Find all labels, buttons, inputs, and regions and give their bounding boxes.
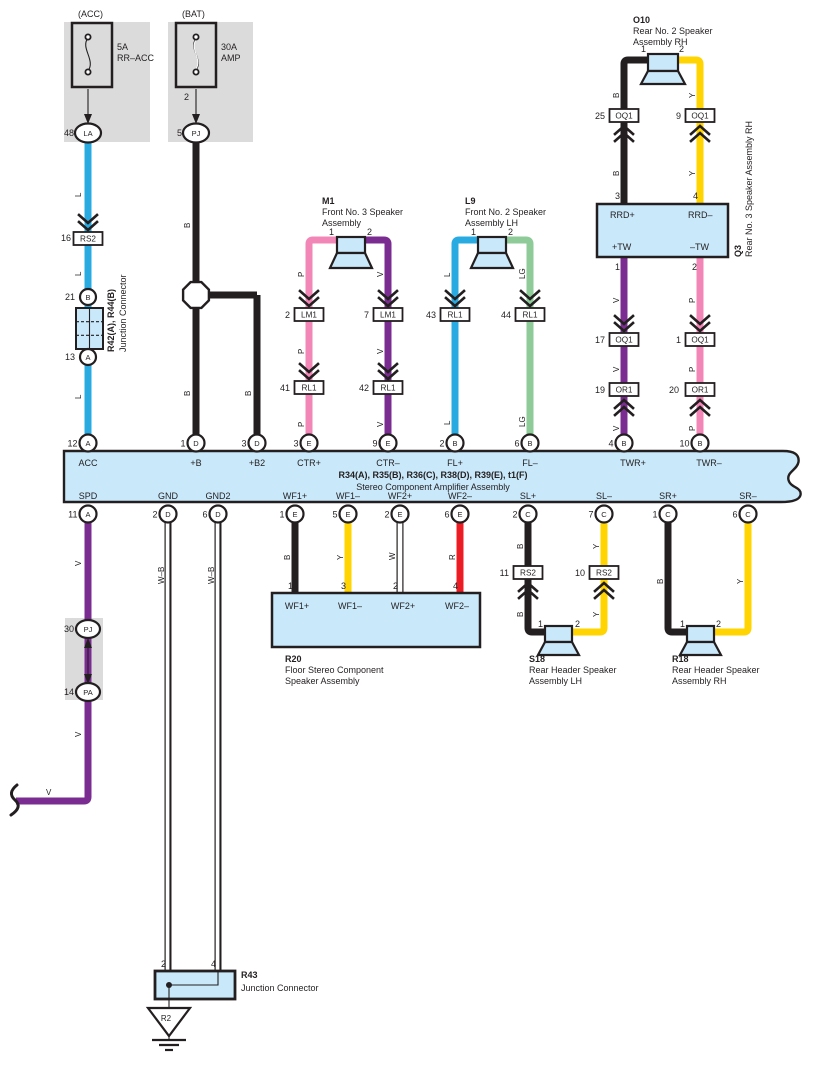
wire-code: V: [612, 366, 621, 372]
connector-rs2-10-label: RS2: [596, 569, 612, 578]
wire-code: P: [297, 349, 306, 354]
speaker-icon: [337, 237, 365, 253]
bus-label: CTR–: [376, 458, 400, 468]
speaker-id: R18: [672, 654, 689, 664]
wire-code: P: [688, 367, 697, 372]
pin-num: 2: [384, 510, 389, 520]
connector-oq1-9-num: 9: [676, 111, 681, 121]
wire-break-icon: [11, 785, 18, 815]
bus-label: SPD: [79, 491, 98, 501]
q3-tw-plus: +TW: [612, 242, 632, 252]
q3-rrd-plus: RRD+: [610, 210, 635, 220]
wire-code: L: [74, 271, 83, 276]
speaker-m1: M1 Front No. 3 Speaker Assembly 1 2 P V …: [280, 196, 403, 427]
wire-code: V: [612, 425, 621, 431]
wire-code: B: [244, 391, 253, 396]
pin-term: B: [621, 439, 626, 448]
wiring-diagram: (ACC) 5A RR–ACC 48 LA (BAT) 30A AMP 2 5 …: [0, 0, 815, 1063]
bat-harness-box: [168, 22, 253, 142]
wire-code: R: [448, 554, 457, 560]
pin-num: 2: [512, 510, 517, 520]
speaker-cone-icon: [330, 253, 372, 268]
connector-rl1-41-label: RL1: [301, 384, 316, 393]
junction-r42-desc: Junction Connector: [118, 274, 128, 352]
wire-fl-plus-L: [455, 240, 482, 439]
terminal-PJ2-label: PJ: [84, 625, 93, 634]
pin-term: E: [397, 510, 402, 519]
wire-ctr-plus-P: [309, 240, 344, 439]
pin-num: 6: [444, 510, 449, 520]
wire-code: P: [297, 422, 306, 427]
terminal-LA-label: LA: [83, 129, 92, 138]
pin-num: 3: [293, 439, 298, 449]
connector-oq1-17-label: OQ1: [615, 336, 633, 345]
speaker-cone-icon: [641, 71, 685, 84]
connector-or1-20-label: OR1: [692, 386, 709, 395]
connector-or1-19-num: 19: [595, 385, 605, 395]
pin-num: 2: [152, 510, 157, 520]
speaker-icon: [687, 626, 714, 642]
speaker-id: L9: [465, 196, 476, 206]
fuse-acc-rating: 5A: [117, 42, 128, 52]
fuse-bat-pin2: 2: [184, 92, 189, 102]
connector-rl1-43-label: RL1: [447, 311, 462, 320]
terminal-21B-label: B: [85, 293, 90, 302]
speaker-pin1: 1: [329, 227, 334, 237]
fuse-acc-pin-bottom: [85, 69, 90, 74]
wire-code: Y: [688, 170, 697, 176]
pin-term: E: [345, 510, 350, 519]
connector-oq1-9-label: OQ1: [691, 112, 709, 121]
connector-lm1-7-num: 7: [364, 310, 369, 320]
wire-sr-minus-Y: [712, 518, 748, 632]
pin-num: 6: [514, 439, 519, 449]
speaker-pin2: 2: [679, 44, 684, 54]
pin-num: 6: [202, 510, 207, 520]
connector-oq1-25-num: 25: [595, 111, 605, 121]
pin-term: C: [665, 510, 671, 519]
wire-code: LG: [518, 416, 527, 427]
wire-sr-plus-B: [668, 518, 688, 632]
wire-code: B: [612, 171, 621, 176]
wire-code: B: [516, 612, 525, 617]
fuse-bat-pin-bottom: [193, 69, 198, 74]
terminal-13A-label: A: [85, 353, 90, 362]
terminal-PJ-label: PJ: [192, 129, 201, 138]
amplifier-top-pins: 12 A 1 D 3 D 3 E 9 E 2 B 6 B 4 B 10: [67, 435, 708, 452]
wire-code: L: [74, 394, 83, 399]
connector-rl1-42-num: 42: [359, 383, 369, 393]
bus-label: SL+: [520, 491, 536, 501]
pin-num: 5: [332, 510, 337, 520]
r43-id: R43: [241, 970, 258, 980]
pin-num: 9: [372, 439, 377, 449]
q3-pin2: 2: [692, 262, 697, 272]
bus-label: CTR+: [297, 458, 321, 468]
amplifier-bottom-pins: 11 A 2 D 6 D 1 E 5 E 2 E 6 E 2 C 7: [68, 506, 756, 523]
speaker-line1: Front No. 2 Speaker: [465, 207, 546, 217]
pin-num: 11: [68, 510, 77, 520]
wires: [16, 60, 748, 971]
r20-pin-num: 2: [393, 581, 398, 591]
bus-label: ACC: [78, 458, 98, 468]
connector-rs2-16-label: RS2: [80, 235, 96, 244]
connector-rs2-11-label: RS2: [520, 569, 536, 578]
q3-pin4: 4: [693, 191, 698, 201]
terminal-5-num: 5: [177, 128, 182, 138]
speaker-id: M1: [322, 196, 335, 206]
bus-label: GND2: [205, 491, 230, 501]
pin-term: D: [215, 510, 221, 519]
speaker-pin1: 1: [538, 619, 543, 629]
wire-ctr-minus-V: [360, 240, 388, 439]
pin-num: 1: [279, 510, 284, 520]
pin-term: C: [745, 510, 751, 519]
r20-pin-num: 3: [341, 581, 346, 591]
connector-rs2-11-num: 11: [500, 568, 509, 578]
terminal-48-num: 48: [64, 128, 74, 138]
fuse-acc-header: (ACC): [78, 9, 103, 19]
r20-line1: Floor Stereo Component: [285, 665, 384, 675]
q3-tw-minus: –TW: [690, 242, 710, 252]
fuse-acc-name: RR–ACC: [117, 53, 155, 63]
junction-r42-name: R42(A), R44(B): [106, 289, 116, 352]
wire-code: W: [388, 552, 397, 560]
r20-pin-num: 1: [288, 581, 293, 591]
speaker-pin2: 2: [575, 619, 580, 629]
bus-label: FL+: [447, 458, 463, 468]
pin-term: E: [292, 510, 297, 519]
speaker-icon: [478, 237, 506, 253]
r20-id: R20: [285, 654, 302, 664]
fuse-bat-name: AMP: [221, 53, 241, 63]
bus-label: TWR–: [696, 458, 722, 468]
diagram-canvas: (ACC) 5A RR–ACC 48 LA (BAT) 30A AMP 2 5 …: [0, 0, 815, 1063]
pin-term: E: [457, 510, 462, 519]
pin-term: D: [193, 439, 199, 448]
wire-code: B: [612, 93, 621, 98]
r20-pin-label: WF2–: [445, 601, 469, 611]
bus-label: TWR+: [620, 458, 646, 468]
bus-label: +B2: [249, 458, 265, 468]
connector-or1-20-num: 20: [669, 385, 679, 395]
wire-code: B: [656, 579, 665, 584]
connector-lm1-2-num: 2: [285, 310, 290, 320]
connector-rl1-44-label: RL1: [522, 311, 537, 320]
pin-term: D: [165, 510, 171, 519]
q3-rrd-minus: RRD–: [688, 210, 713, 220]
bus-label: WF2+: [388, 491, 412, 501]
wire-code: W–B: [157, 567, 166, 584]
terminal-21-num: 21: [65, 292, 75, 302]
r20-line2: Speaker Assembly: [285, 676, 360, 686]
pin-term: C: [601, 510, 607, 519]
pin-num: 1: [652, 510, 657, 520]
r20-pin-label: WF2+: [391, 601, 415, 611]
wire-code: V: [46, 788, 52, 797]
wire-code: V: [612, 297, 621, 303]
wire-code: V: [376, 348, 385, 354]
connector-rl1-41-num: 41: [280, 383, 290, 393]
speaker-icon: [545, 626, 572, 642]
wire-code: B: [183, 391, 192, 396]
speaker-line2: Assembly LH: [529, 676, 582, 686]
pin-num: 3: [241, 439, 246, 449]
speaker-pin2: 2: [716, 619, 721, 629]
r20-pin-label: WF1–: [338, 601, 362, 611]
bus-label: FL–: [522, 458, 538, 468]
wire-code: W–B: [207, 567, 216, 584]
speaker-id: O10: [633, 15, 650, 25]
speaker-icon: [648, 54, 678, 71]
wire-code: V: [376, 271, 385, 277]
speaker-pin1: 1: [641, 44, 646, 54]
splice-octagon: [183, 282, 209, 308]
q3-desc: Rear No. 3 Speaker Assembly RH: [744, 121, 754, 257]
wire-code: Y: [592, 543, 601, 549]
pin-num: 4: [608, 439, 613, 449]
r20-pin-num: 4: [453, 581, 458, 591]
amplifier-desc: Stereo Component Amplifier Assembly: [356, 482, 510, 492]
pin-num: 6: [732, 510, 737, 520]
pin-num: 7: [588, 510, 593, 520]
wire-code: L: [74, 192, 83, 197]
pin-term: D: [254, 439, 260, 448]
speaker-cone-icon: [471, 253, 513, 268]
connector-oq1-1-label: OQ1: [691, 336, 709, 345]
wire-code: B: [183, 223, 192, 228]
pin-term: A: [85, 510, 90, 519]
wire-code: V: [74, 560, 83, 566]
connector-lm1-2-label: LM1: [301, 311, 317, 320]
bus-label: SR–: [739, 491, 757, 501]
connector-or1-19-label: OR1: [616, 386, 633, 395]
wire-code: Y: [592, 611, 601, 617]
acc-branch: L 16 RS2 L 21 B R42(A), R44(B) Junction …: [61, 192, 128, 399]
r20-floor-speaker: B Y W R 1 3 2 4 WF1+ WF1– WF2+ WF2– R20 …: [272, 552, 480, 686]
fuse-acc-pin-top: [85, 34, 90, 39]
terminal-14-num: 14: [64, 687, 74, 697]
r43-pin4: 4: [211, 959, 216, 969]
connector-rl1-42-label: RL1: [380, 384, 395, 393]
connector-oq1-25-label: OQ1: [615, 112, 633, 121]
wire-code: L: [443, 420, 452, 425]
connector-rs2-16-num: 16: [61, 233, 71, 243]
r20-pin-label: WF1+: [285, 601, 309, 611]
speaker-line1: Rear Header Speaker: [672, 665, 760, 675]
terminal-13-num: 13: [65, 352, 75, 362]
connector-rs2-10-num: 10: [575, 568, 585, 578]
pin-term: C: [525, 510, 531, 519]
fuse-bat-pin-top: [193, 34, 198, 39]
connector-oq1-1-num: 1: [676, 335, 681, 345]
speaker-line2: Assembly RH: [672, 676, 727, 686]
wire-code: V: [376, 421, 385, 427]
fuse-bat-header: (BAT): [182, 9, 205, 19]
speaker-line2: Assembly: [322, 218, 362, 228]
wire-code: L: [443, 272, 452, 277]
wire-code: LG: [518, 268, 527, 279]
amplifier-bus: 12 A 1 D 3 D 3 E 9 E 2 B 6 B 4 B 10: [64, 435, 801, 523]
r43-pin2: 2: [161, 959, 166, 969]
wire-code: P: [297, 272, 306, 277]
ground-point-id: R2: [161, 1014, 172, 1023]
pin-term: E: [385, 439, 390, 448]
wire-code: P: [688, 426, 697, 431]
bus-label: +B: [190, 458, 201, 468]
fuse-bat-rating: 30A: [221, 42, 237, 52]
q3-id: Q3: [733, 245, 743, 257]
pin-term: B: [527, 439, 532, 448]
pin-num: 12: [67, 439, 77, 449]
q3-pin1: 1: [615, 262, 620, 272]
acc-harness-box: [64, 22, 150, 142]
wire-code: Y: [336, 554, 345, 560]
connector-lm1-7-label: LM1: [380, 311, 396, 320]
speaker-line1: Rear No. 2 Speaker: [633, 26, 713, 36]
pin-num: 2: [439, 439, 444, 449]
amplifier-name: R34(A), R35(B), R36(C), R38(D), R39(E), …: [338, 470, 527, 480]
bus-label: WF1–: [336, 491, 360, 501]
speaker-pin2: 2: [367, 227, 372, 237]
wire-code: Y: [736, 578, 745, 584]
speaker-id: S18: [529, 654, 545, 664]
speaker-line1: Rear Header Speaker: [529, 665, 617, 675]
speaker-pin1: 1: [680, 619, 685, 629]
wire-code: B: [516, 544, 525, 549]
pin-term: B: [452, 439, 457, 448]
wire-code: B: [283, 555, 292, 560]
bus-label: WF2–: [448, 491, 472, 501]
speaker-pin2: 2: [508, 227, 513, 237]
connector-oq1-17-num: 17: [595, 335, 605, 345]
pin-num: 1: [180, 439, 185, 449]
speaker-line1: Front No. 3 Speaker: [322, 207, 403, 217]
pin-term: B: [697, 439, 702, 448]
speaker-pin1: 1: [471, 227, 476, 237]
terminal-30-num: 30: [64, 624, 74, 634]
wire-code: V: [74, 731, 83, 737]
connector-rl1-44-num: 44: [501, 310, 511, 320]
connector-rl1-43-num: 43: [426, 310, 436, 320]
wire-code: Y: [688, 92, 697, 98]
bus-label: SR+: [659, 491, 677, 501]
bus-label: GND: [158, 491, 179, 501]
terminal-PA-label: PA: [83, 688, 92, 697]
r43-desc: Junction Connector: [241, 983, 319, 993]
pin-term: A: [85, 439, 90, 448]
wire-code: P: [688, 298, 697, 303]
pin-term: E: [306, 439, 311, 448]
bus-label: SL–: [596, 491, 612, 501]
q3-pin3: 3: [615, 191, 620, 201]
pin-num: 10: [679, 439, 689, 449]
bus-label: WF1+: [283, 491, 307, 501]
